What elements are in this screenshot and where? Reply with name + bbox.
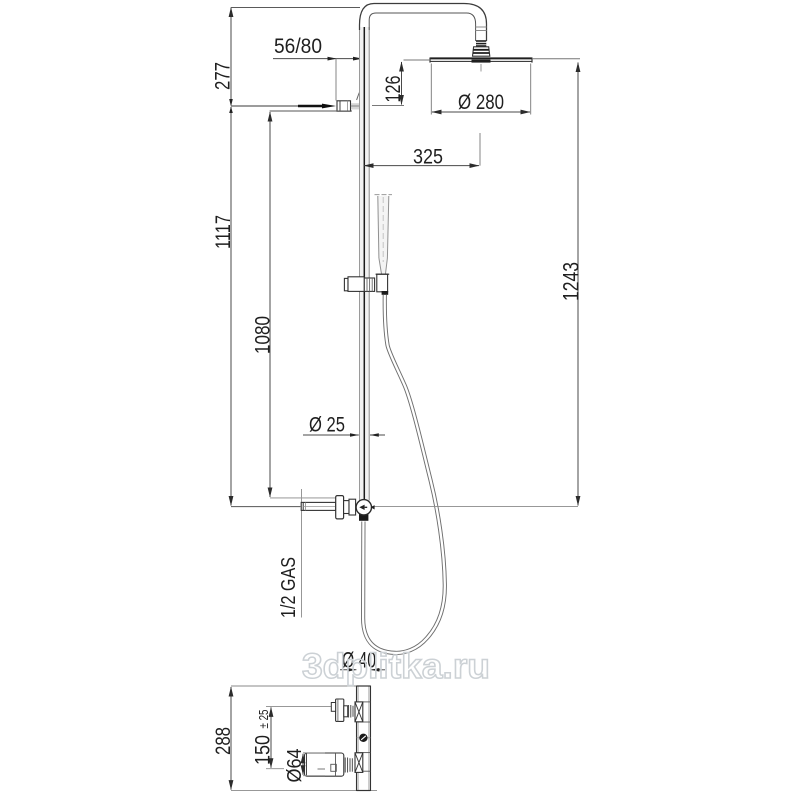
svg-text:288: 288: [212, 727, 235, 755]
svg-text:1117: 1117: [212, 215, 235, 249]
svg-text:1080: 1080: [252, 316, 275, 354]
svg-text:325: 325: [413, 146, 443, 169]
svg-text:3dplitka.ru: 3dplitka.ru: [302, 647, 490, 686]
svg-text:Ø 25: Ø 25: [309, 414, 345, 437]
svg-text:126: 126: [382, 76, 405, 103]
svg-text:277: 277: [212, 62, 235, 90]
svg-text:150: 150: [252, 735, 275, 765]
svg-text:1/2 GAS: 1/2 GAS: [278, 557, 300, 618]
svg-text:Ø 280: Ø 280: [458, 91, 504, 114]
svg-text:56/80: 56/80: [274, 35, 322, 58]
svg-text:Ø64: Ø64: [284, 749, 306, 783]
svg-text:± 25: ± 25: [256, 710, 271, 729]
svg-text:1243: 1243: [559, 262, 584, 301]
